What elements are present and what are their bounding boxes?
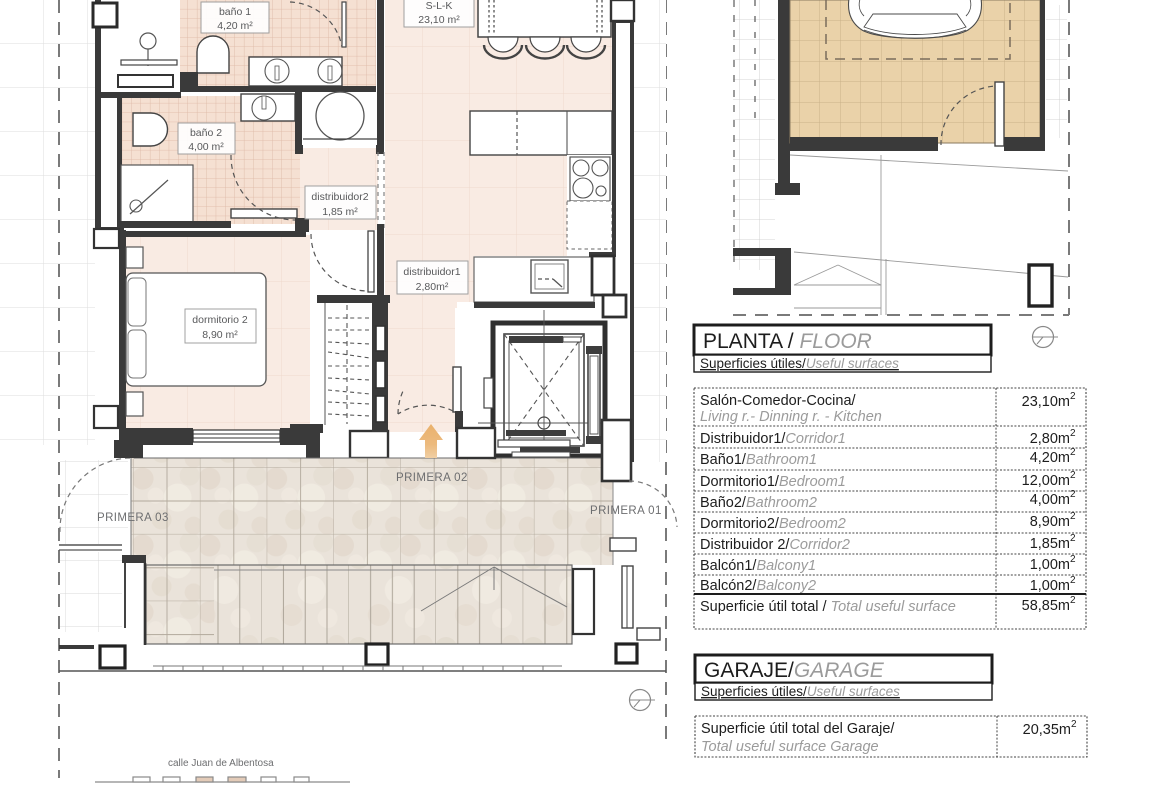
svg-text:8,90m: 8,90m (1030, 514, 1070, 530)
svg-text:2: 2 (1071, 719, 1077, 730)
svg-text:Dormitorio1/Bedroom1: Dormitorio1/Bedroom1 (700, 474, 846, 490)
svg-text:GARAJE/GARAGE: GARAJE/GARAGE (704, 659, 885, 682)
svg-text:Superficies útiles/Useful surf: Superficies útiles/Useful surfaces (701, 684, 900, 699)
svg-text:58,85m: 58,85m (1022, 598, 1070, 614)
svg-text:distribuidor2: distribuidor2 (311, 191, 368, 203)
svg-text:1,00m: 1,00m (1030, 557, 1070, 573)
svg-text:calle Juan de Albentosa: calle Juan de Albentosa (168, 758, 274, 769)
svg-text:PRIMERA 02: PRIMERA 02 (396, 472, 468, 484)
svg-text:2: 2 (1070, 575, 1076, 586)
svg-text:23,10m: 23,10m (1022, 394, 1070, 410)
svg-text:2,80m: 2,80m (1030, 431, 1070, 447)
svg-text:Balcón1/Balcony1: Balcón1/Balcony1 (700, 558, 816, 574)
svg-text:2: 2 (1070, 595, 1076, 606)
svg-text:2: 2 (1070, 533, 1076, 544)
svg-text:4,00m: 4,00m (1030, 492, 1070, 508)
svg-text:1,85 m²: 1,85 m² (322, 206, 358, 218)
svg-text:1,00m: 1,00m (1030, 578, 1070, 594)
svg-text:2: 2 (1070, 428, 1076, 439)
svg-text:2: 2 (1070, 391, 1076, 402)
svg-text:Distribuidor 2/Corridor2: Distribuidor 2/Corridor2 (700, 537, 850, 553)
svg-text:baño 2: baño 2 (190, 127, 222, 139)
svg-text:Baño2/Bathroom2: Baño2/Bathroom2 (700, 495, 817, 511)
svg-text:8,90 m²: 8,90 m² (202, 329, 238, 341)
svg-text:baño 1: baño 1 (219, 6, 251, 18)
svg-text:Superficie útil total / Total: Superficie útil total / Total useful sur… (700, 599, 956, 615)
svg-text:4,20 m²: 4,20 m² (217, 20, 253, 32)
svg-text:Dormitorio2/Bedroom2: Dormitorio2/Bedroom2 (700, 516, 846, 532)
svg-text:20,35m: 20,35m (1023, 722, 1071, 738)
svg-text:2: 2 (1070, 554, 1076, 565)
svg-text:PRIMERA 01: PRIMERA 01 (590, 505, 662, 517)
svg-text:2,80m²: 2,80m² (416, 281, 449, 293)
svg-text:Superficies útiles/Useful surf: Superficies útiles/Useful surfaces (700, 356, 899, 371)
svg-text:Balcón2/Balcony2: Balcón2/Balcony2 (700, 578, 816, 594)
svg-text:2: 2 (1070, 447, 1076, 458)
svg-text:1,85m: 1,85m (1030, 536, 1070, 552)
svg-text:Baño1/Bathroom1: Baño1/Bathroom1 (700, 452, 817, 468)
svg-text:S-L-K: S-L-K (426, 0, 453, 12)
svg-text:2: 2 (1070, 489, 1076, 500)
svg-text:distribuidor1: distribuidor1 (403, 266, 460, 278)
svg-text:4,20m: 4,20m (1030, 450, 1070, 466)
svg-text:2: 2 (1070, 470, 1076, 481)
svg-text:dormitorio 2: dormitorio 2 (192, 314, 248, 326)
svg-text:23,10 m²: 23,10 m² (418, 14, 460, 26)
svg-text:Superficie útil total del Gara: Superficie útil total del Garaje/ (701, 721, 895, 737)
svg-text:PLANTA / FLOOR: PLANTA / FLOOR (703, 330, 872, 353)
svg-text:Living r.- Dinning r. - Kitche: Living r.- Dinning r. - Kitchen (700, 409, 882, 425)
svg-text:Total useful surface Garage: Total useful surface Garage (701, 739, 879, 755)
svg-text:4,00 m²: 4,00 m² (188, 141, 224, 153)
svg-text:12,00m: 12,00m (1022, 473, 1070, 489)
svg-text:PRIMERA 03: PRIMERA 03 (97, 512, 169, 524)
svg-text:2: 2 (1070, 511, 1076, 522)
svg-text:Salón-Comedor-Cocina/: Salón-Comedor-Cocina/ (700, 393, 857, 409)
svg-text:Distribuidor1/Corridor1: Distribuidor1/Corridor1 (700, 431, 846, 447)
